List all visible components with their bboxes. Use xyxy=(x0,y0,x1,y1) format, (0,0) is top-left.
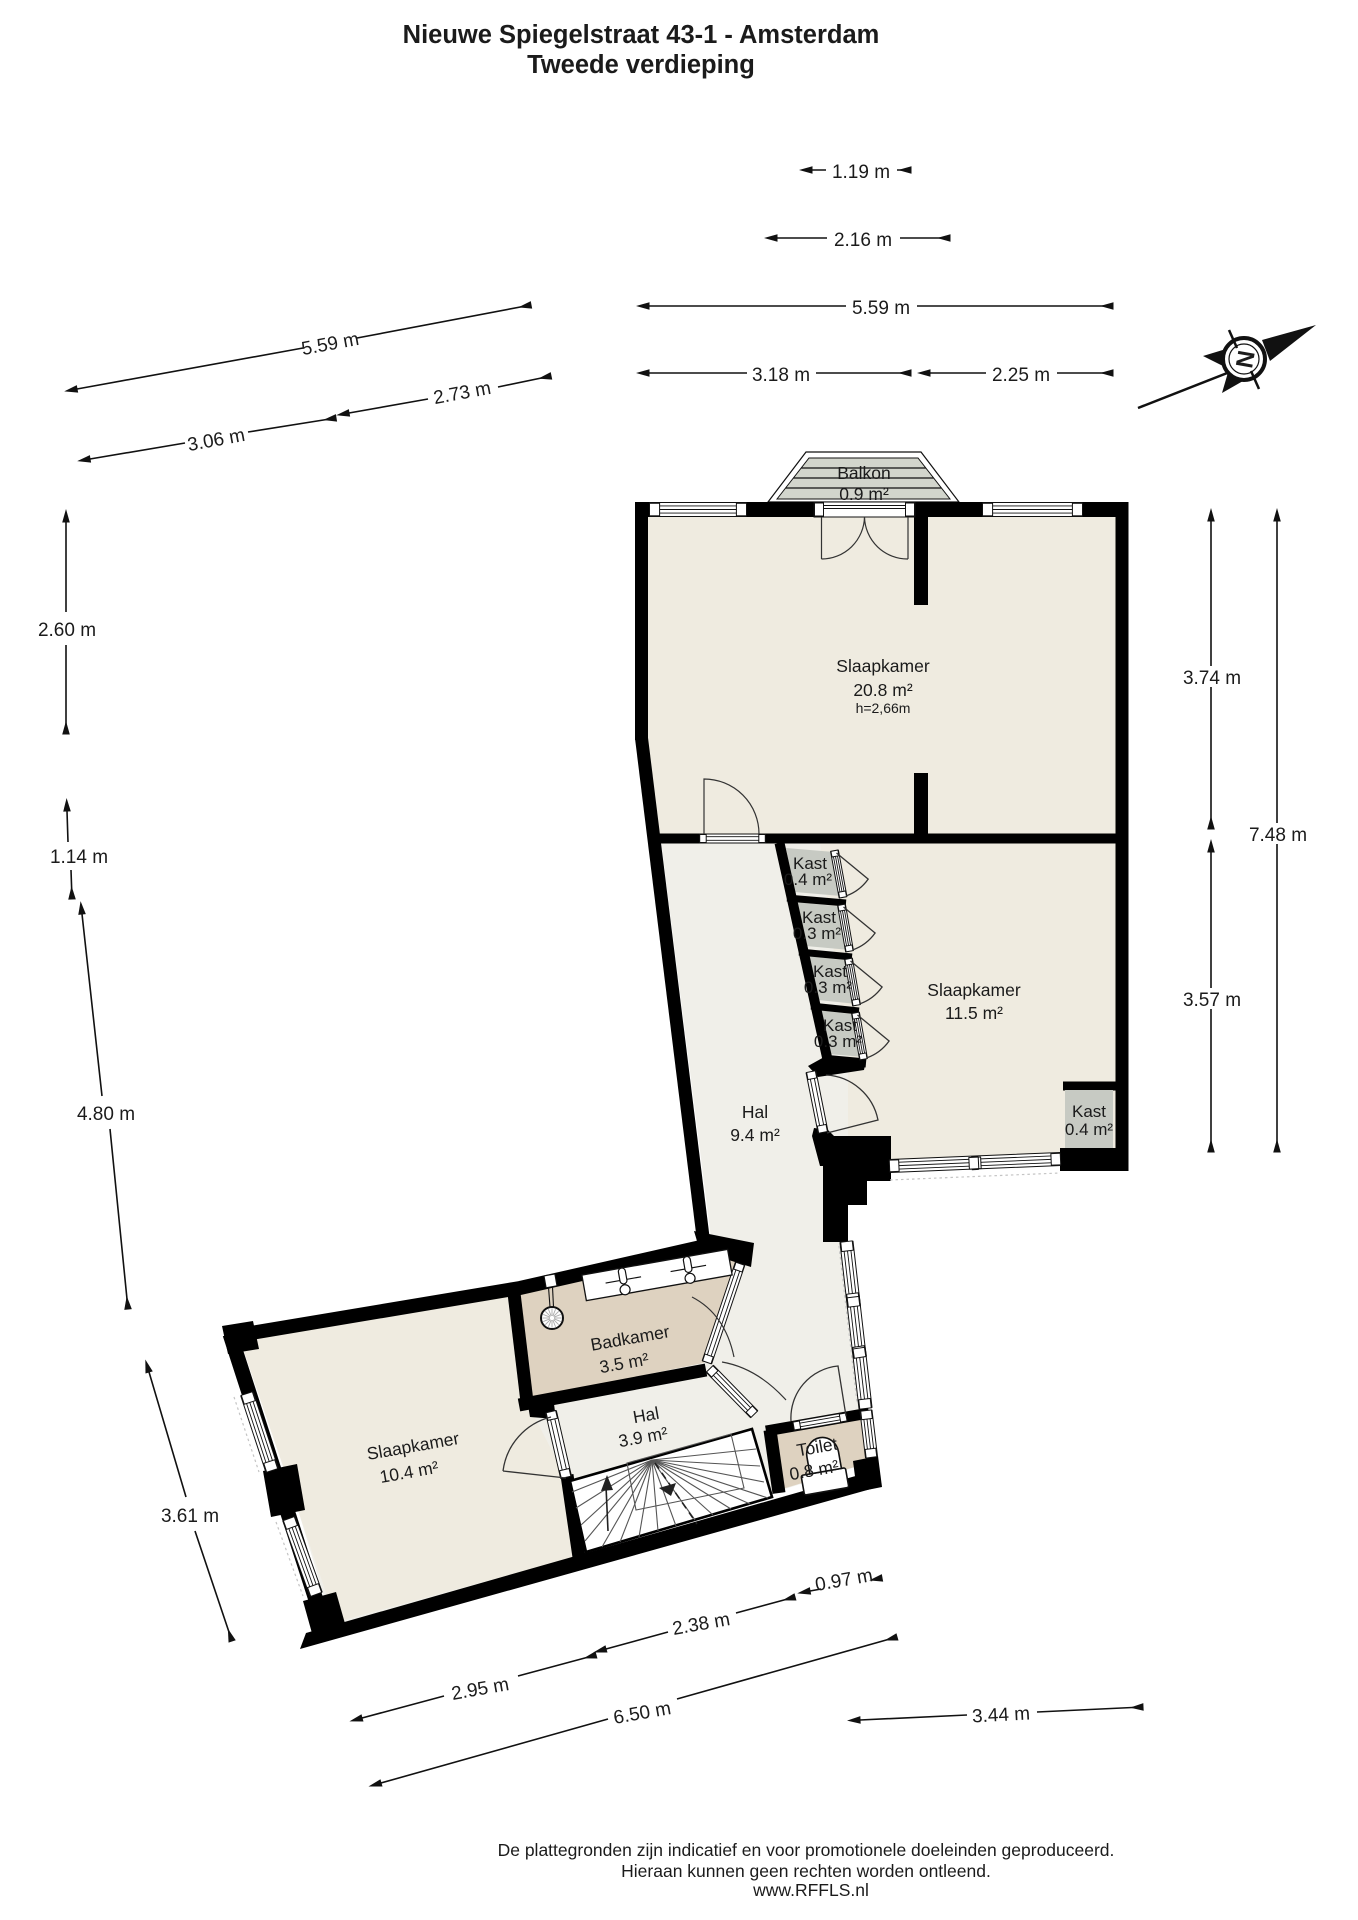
svg-text:2.16 m: 2.16 m xyxy=(834,230,892,251)
svg-text:0.97 m: 0.97 m xyxy=(814,1565,875,1596)
svg-text:Hal: Hal xyxy=(742,1102,768,1122)
svg-text:Slaapkamer: Slaapkamer xyxy=(927,980,1021,1000)
svg-text:0.3 m²: 0.3 m² xyxy=(793,924,842,943)
svg-text:6.50 m: 6.50 m xyxy=(612,1698,673,1729)
svg-text:2.38 m: 2.38 m xyxy=(671,1609,732,1640)
svg-text:4.80 m: 4.80 m xyxy=(77,1104,135,1125)
svg-text:www.RFFLS.nl: www.RFFLS.nl xyxy=(752,1880,869,1900)
svg-text:3.18 m: 3.18 m xyxy=(752,365,810,386)
svg-text:0.9 m²: 0.9 m² xyxy=(839,484,889,504)
svg-text:Tweede verdieping: Tweede verdieping xyxy=(527,51,755,79)
svg-text:11.5 m²: 11.5 m² xyxy=(945,1003,1003,1023)
svg-text:Nieuwe Spiegelstraat 43-1 - Am: Nieuwe Spiegelstraat 43-1 - Amsterdam xyxy=(403,21,880,49)
svg-text:20.8 m²: 20.8 m² xyxy=(853,680,912,700)
svg-text:0.3 m²: 0.3 m² xyxy=(814,1032,863,1051)
svg-text:De plattegronden zijn indicati: De plattegronden zijn indicatief en voor… xyxy=(498,1840,1115,1860)
svg-text:Kast: Kast xyxy=(1072,1102,1106,1121)
svg-text:0.4 m²: 0.4 m² xyxy=(1065,1120,1114,1139)
svg-text:7.48 m: 7.48 m xyxy=(1249,825,1307,846)
svg-text:1.14 m: 1.14 m xyxy=(50,847,108,868)
svg-text:2.73 m: 2.73 m xyxy=(432,378,493,409)
svg-text:Balkon: Balkon xyxy=(837,463,891,483)
svg-text:5.59 m: 5.59 m xyxy=(300,329,361,360)
svg-text:3.06 m: 3.06 m xyxy=(186,425,247,456)
svg-text:9.4 m²: 9.4 m² xyxy=(730,1125,780,1145)
svg-text:5.59 m: 5.59 m xyxy=(852,298,910,319)
svg-text:2.95 m: 2.95 m xyxy=(450,1674,511,1705)
svg-text:1.19 m: 1.19 m xyxy=(832,162,890,183)
svg-text:Hieraan kunnen geen rechten wo: Hieraan kunnen geen rechten worden ontle… xyxy=(621,1861,991,1881)
svg-text:h=2,66m: h=2,66m xyxy=(856,700,911,716)
svg-text:3.57 m: 3.57 m xyxy=(1183,990,1241,1011)
svg-text:2.25 m: 2.25 m xyxy=(992,365,1050,386)
svg-text:0.4 m²: 0.4 m² xyxy=(784,870,833,889)
svg-text:3.44 m: 3.44 m xyxy=(972,1703,1031,1727)
svg-text:Slaapkamer: Slaapkamer xyxy=(836,656,930,676)
svg-text:3.74 m: 3.74 m xyxy=(1183,668,1241,689)
svg-text:0.3 m²: 0.3 m² xyxy=(804,978,853,997)
svg-text:2.60 m: 2.60 m xyxy=(38,620,96,641)
svg-text:3.61 m: 3.61 m xyxy=(161,1506,219,1527)
